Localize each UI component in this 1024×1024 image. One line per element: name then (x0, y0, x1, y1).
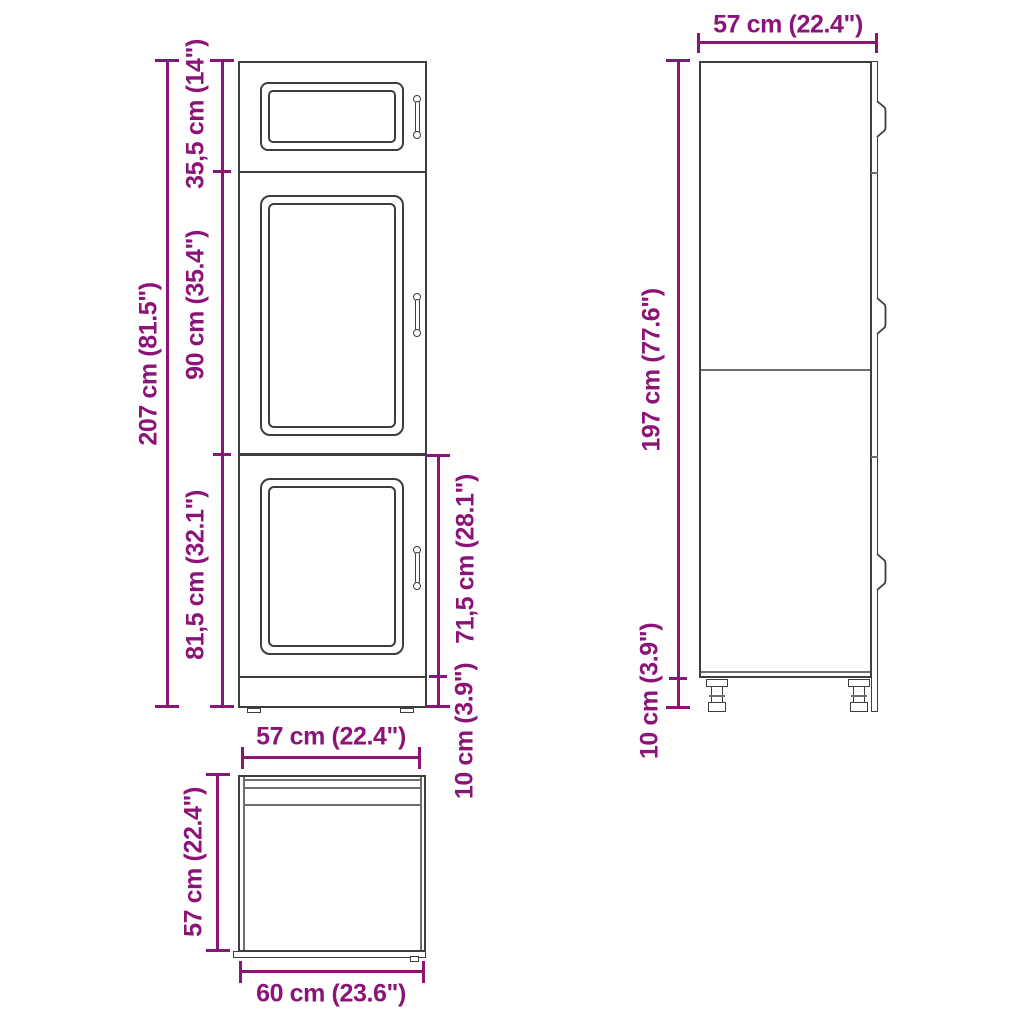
side-door-panel (871, 61, 878, 712)
dim-line (240, 970, 425, 973)
door-handle-icon (411, 546, 423, 590)
dim-label-plinth: 10 cm (3.9") (453, 663, 478, 799)
top-inner-top-line (245, 779, 420, 781)
handle-screw-bottom (413, 131, 421, 139)
side-door-handle-icon (876, 297, 888, 335)
dim-tick (213, 170, 231, 173)
handle-bar (415, 299, 420, 331)
side-door-gap-top (871, 172, 878, 174)
handle-screw-bottom (413, 582, 421, 590)
dim-line (221, 61, 224, 708)
dim-line (677, 61, 680, 709)
top-inner-right-line (420, 777, 422, 950)
top-cabinet-outline (238, 775, 426, 952)
side-door-handle-icon (876, 553, 888, 591)
front-middle-divider (240, 453, 425, 456)
dim-cap (875, 33, 878, 53)
dim-cap (697, 33, 700, 53)
dim-label-middle-section: 90 cm (35.4") (184, 230, 209, 380)
top-frame-line (245, 804, 420, 806)
dim-line (216, 775, 219, 952)
door-handle-icon (411, 95, 423, 139)
dim-cap (426, 454, 450, 457)
front-top-divider (240, 171, 425, 173)
dim-label-bottom-section: 81,5 cm (32.1") (184, 490, 209, 660)
side-bottom-inner-line (701, 671, 870, 673)
top-door-handle-icon (410, 956, 419, 962)
dim-cap (666, 706, 690, 709)
dim-cap (666, 59, 690, 62)
dim-line (437, 455, 440, 708)
dim-cap (422, 961, 425, 983)
dim-label-body-height: 197 cm (77.6") (640, 288, 665, 451)
front-bottom-door-panel (268, 486, 396, 647)
foot-screw-line (709, 695, 725, 697)
dim-label-front-width: 57 cm (22.4") (256, 725, 406, 750)
dim-label-top-width: 60 cm (23.6") (256, 982, 406, 1007)
foot-base (850, 702, 868, 712)
handle-bar (415, 552, 420, 584)
top-inner-left-line (243, 777, 245, 950)
front-left-foot (247, 708, 261, 713)
top-door-strip (233, 951, 426, 958)
door-handle-icon (411, 293, 423, 337)
dim-line (242, 756, 421, 759)
dim-label-bottom-door: 71,5 cm (28.1") (454, 474, 479, 644)
front-right-foot (400, 708, 414, 713)
front-middle-door-panel (268, 203, 396, 428)
dim-cap (239, 961, 242, 983)
dim-cap (241, 747, 244, 769)
front-top-door-panel (268, 90, 396, 143)
top-back-panel-line (245, 787, 420, 789)
cabinet-dimension-diagram: 207 cm (81.5") 35,5 cm (14") 90 cm (35.4… (0, 0, 1024, 1024)
side-door-gap-bottom (871, 456, 878, 458)
dim-cap (206, 773, 230, 776)
dim-cap (155, 705, 179, 708)
foot-screw-line (851, 695, 867, 697)
side-door-handle-icon (876, 100, 888, 138)
handle-bar (415, 101, 420, 133)
dim-cap (155, 59, 179, 62)
dim-cap (426, 705, 450, 708)
front-plinth-line (240, 676, 425, 678)
dim-label-top-depth: 57 cm (22.4") (182, 787, 207, 937)
dim-label-side-depth: 57 cm (22.4") (713, 13, 863, 38)
dim-tick (429, 675, 447, 678)
dim-line (698, 41, 878, 44)
foot-base (708, 702, 726, 712)
dim-tick (669, 677, 687, 680)
dim-line (166, 61, 169, 708)
dim-cap (210, 705, 234, 708)
side-shelf-divider (701, 369, 870, 371)
dim-cap (206, 949, 230, 952)
dim-label-leg-height: 10 cm (3.9") (638, 623, 663, 759)
dim-cap (418, 747, 421, 769)
dim-tick (213, 453, 231, 456)
handle-screw-bottom (413, 329, 421, 337)
dim-label-top-section: 35,5 cm (14") (184, 39, 209, 189)
dim-label-total-height: 207 cm (81.5") (137, 282, 162, 445)
dim-cap (210, 59, 234, 62)
